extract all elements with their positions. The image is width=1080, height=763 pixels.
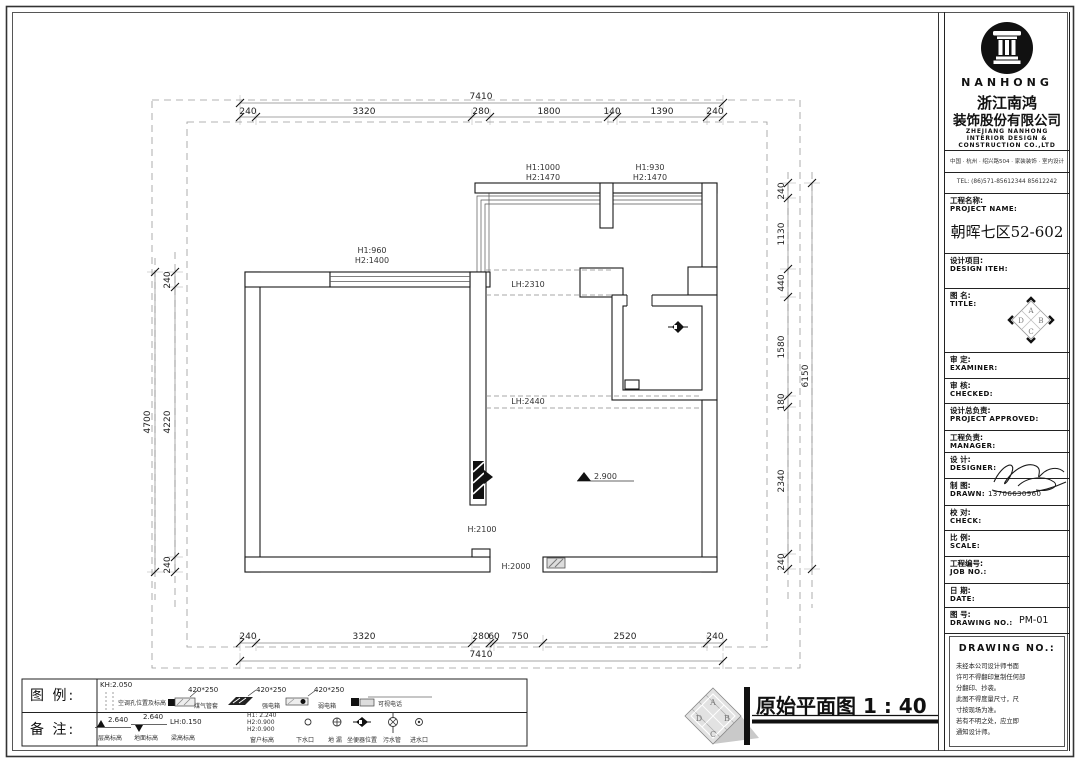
note-line: 许可不得翻印复制任何部 [956,672,1025,683]
brand-name: NANHONG [945,76,1069,89]
dim-right-6: 240 [777,553,787,570]
field-date: 日 期: DATE: [945,583,1069,608]
field-examiner: 审 定: EXAMINER: [945,352,1069,379]
field-project-approved: 设计总负责: PROJECT APPROVED: [945,403,1069,431]
dim-right-total: 6150 [801,364,811,387]
company-tel-row: TEL: (86)571-85612344 85612242 [945,172,1069,194]
note-line: 若有不明之处，应立即 [956,716,1025,727]
legend-row2-label: 备 注: [30,719,75,739]
dim-bottom-1: 3320 [353,632,376,642]
svg-text:C: C [710,730,716,739]
field-label-en: CHECKED: [950,390,993,398]
svg-text:C: C [1028,328,1033,336]
dim-top-4: 140 [603,107,620,117]
dim-top-5: 1390 [651,107,674,117]
dim-right-2: 440 [777,274,787,291]
field-design-item: 设计项目: DESIGN ITEH: [945,253,1069,289]
svg-text:D: D [1018,317,1024,325]
sheet-border [7,7,1074,757]
legend-drain-name: 下水口 [296,735,314,744]
legend-aircon-name: 空调孔位置及标高 [118,698,166,707]
window-label: H1:960 [357,246,386,255]
title-bar [744,687,750,745]
opening-label: H:2000 [501,562,530,571]
company-address: 中国 · 杭州 · 绍兴路504 · 家装装饰 · 室内设计 [945,157,1069,165]
field-label-en: JOB NO.: [950,568,987,576]
legend-floorh-name: 层高标高 [98,733,122,742]
drawn-label: DRAWN: [950,490,985,498]
power-box-icon [228,690,256,705]
note-line: 通知设计师。 [956,727,1025,738]
drawing-sheet: 7410 240 3320 280 1800 140 1390 240 240 … [0,0,1080,763]
legend-beamh-value: LH:0.150 [170,718,202,726]
company-header: NANHONG 浙江南鸿 装饰股份有限公司 ZHEJIANG NANHONG I… [945,12,1069,151]
weak-box-icon [286,690,316,705]
field-label-en: DATE: [950,595,975,603]
field-title: 图 名: TITLE: A B C D [945,288,1069,353]
title-diamond-small: A B C D [1007,296,1055,344]
dim-bottom-0: 240 [239,632,256,642]
legend-videophone-name: 可视电话 [378,699,402,708]
company-en-line3: CONSTRUCTION CO.,LTD [945,142,1069,149]
dim-bottom-4: 750 [511,632,528,642]
elevation-label: 2.900 [594,472,617,481]
plan-title-scale: 1 : 40 [863,694,927,718]
dim-left-2: 240 [163,556,173,573]
field-label-en: EXAMINER: [950,364,998,372]
dim-right-5: 2340 [777,469,787,492]
opening-label: H:2100 [467,525,496,534]
drawing-number-value: PM-01 [1019,615,1048,626]
drawing-no-heading: DRAWING NO.: [945,643,1069,654]
project-name-value: 朝晖七区52-602 [945,221,1069,242]
legend-floorh-value: 2.640 [108,716,128,724]
floor-drain-icon [333,718,341,726]
notes-text: 未经本公司设计师书面 许可不得翻印复制任何部 分翻印、抄袭。 此图不得度量尺寸，… [956,661,1025,738]
note-line: 寸按现场为准。 [956,705,1025,716]
inlet-icon [416,719,423,726]
legend-windowh-name: 窗户标高 [250,735,274,744]
legend-floordrain-name: 地 漏 [328,735,342,744]
dim-top-6: 240 [706,107,723,117]
field-label-en: DRAWING NO.: [950,619,1013,627]
window-label: H2:1400 [355,256,389,265]
legend-weak-name: 弱电箱 [318,701,336,710]
dim-right-0: 240 [777,182,787,199]
legend-power-name: 强电箱 [262,701,280,710]
svg-text:B: B [1038,317,1043,325]
field-checked: 审 核: CHECKED: [945,378,1069,404]
beam-label: LH:2310 [511,280,545,289]
legend-weak-value: 420*250 [314,686,344,694]
window-label: H1:1000 [526,163,560,172]
company-cn-line2: 装饰股份有限公司 [945,109,1069,129]
company-en-line1: ZHEJIANG NANHONG [945,128,1069,135]
legend-inlet-name: 进水口 [410,735,428,744]
legend-groundh-value: 2.640 [143,713,163,721]
legend-sewage-name: 污水管 [383,735,401,744]
legend-windowh-l1: H1: 2.240 [247,712,276,719]
dim-top-3: 1800 [538,107,561,117]
window-left-room [330,272,470,287]
field-label-en: TITLE: [950,300,977,308]
dim-right-1: 1130 [777,222,787,245]
project-name-row: 工程名称: PROJECT NAME: 朝晖七区52-602 [945,193,1069,254]
svg-text:B: B [724,714,730,723]
gas-sleeve-symbol [547,558,565,568]
drawing-no-section: DRAWING NO.: 未经本公司设计师书面 许可不得翻印复制任何部 分翻印、… [945,633,1069,751]
dim-bottom-3: 60 [488,632,500,642]
dim-top-0: 240 [239,107,256,117]
legend-aircon-value: KH:2.050 [100,681,132,689]
window-label: H1:930 [635,163,664,172]
field-check: 校 对: CHECK: [945,505,1069,531]
drain-icon [305,719,311,725]
company-tel: TEL: (86)571-85612344 85612242 [945,179,1069,185]
legend-toilet-name: 坐便器位置 [347,735,377,744]
bay-window-glazing [477,193,702,272]
note-line: 未经本公司设计师书面 [956,661,1025,672]
window-label: H2:1470 [526,173,560,182]
field-job-no: 工程编号: JOB NO.: [945,556,1069,584]
dim-bottom-6: 240 [706,632,723,642]
designer-signature [988,452,1072,504]
legend-windowh-l2: H2:0.900 [247,719,275,726]
svg-text:D: D [696,714,702,723]
note-line: 此图不得度量尺寸，尺 [956,694,1025,705]
dim-left-0: 240 [163,271,173,288]
project-name-label-en: PROJECT NAME: [950,205,1017,213]
company-logo-icon [979,20,1035,76]
title-block: NANHONG 浙江南鸿 装饰股份有限公司 ZHEJIANG NANHONG I… [944,12,1070,751]
legend-beamh-name: 梁高标高 [171,733,195,742]
dim-right-3: 1580 [777,335,787,358]
plan-title: 原始平面图 1 : 40 [756,690,927,719]
dim-right-4: 180 [777,393,787,410]
dim-left-1: 4220 [163,410,173,433]
bathroom-walls [612,293,717,400]
field-manager: 工程负责: MANAGER: [945,430,1069,453]
legend-groundh-name: 地面标高 [134,733,158,742]
dim-top-total: 7410 [470,92,493,102]
field-drawing-no: 图 号: DRAWING NO.: PM-01 [945,607,1069,634]
toilet-icon [353,717,371,727]
dim-bottom-total: 7410 [470,650,493,660]
legend-gas-value: 420*250 [188,686,218,694]
sewage-icon [389,712,398,733]
field-label-en: DESIGN ITEH: [950,265,1008,273]
plan-title-text: 原始平面图 [756,694,856,718]
svg-text:A: A [1027,307,1034,315]
field-label-en: PROJECT APPROVED: [950,415,1039,423]
door-symbol [473,461,493,499]
dim-left-total: 4700 [143,410,153,433]
dim-bottom-5: 2520 [614,632,637,642]
company-address-row: 中国 · 杭州 · 绍兴路504 · 家装装饰 · 室内设计 [945,150,1069,173]
legend-power-value: 420*250 [256,686,286,694]
dim-top-1: 3320 [353,107,376,117]
legend-windowh-l3: H2:0.900 [247,726,275,733]
dim-bottom-2: 280 [472,632,489,642]
legend-gas-name: 煤气管套 [194,701,218,710]
window-label: H2:1470 [633,173,667,182]
svg-text:A: A [709,698,716,707]
legend-row1-label: 图 例: [30,685,75,705]
company-en-line2: INTERIOR DESIGN & [945,135,1069,142]
field-scale: 比 例: SCALE: [945,530,1069,557]
note-line: 分翻印、抄袭。 [956,683,1025,694]
field-label-en: MANAGER: [950,442,996,450]
dim-top-2: 280 [472,107,489,117]
beam-label: LH:2440 [511,397,545,406]
ground-height-icon [131,725,167,733]
field-label-en: CHECK: [950,517,982,525]
floor-plan-canvas: 7410 240 3320 280 1800 140 1390 240 240 … [0,0,1080,763]
field-label-en: SCALE: [950,542,980,550]
